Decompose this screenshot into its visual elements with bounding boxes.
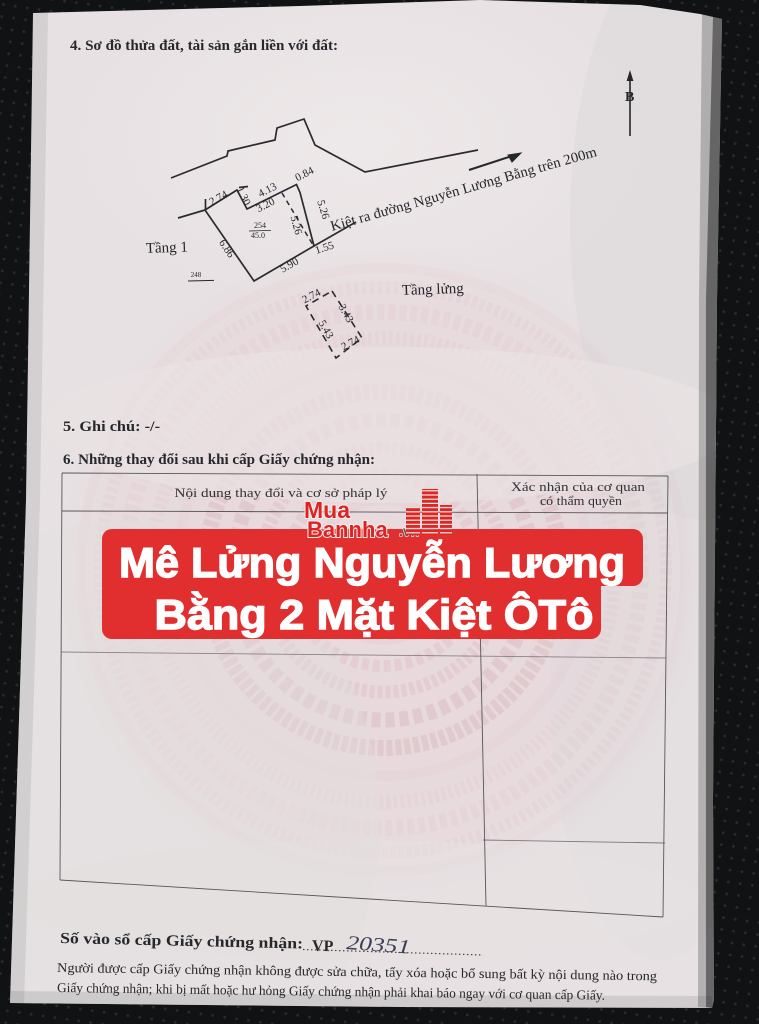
- svg-text:Tầng 1: Tầng 1: [146, 240, 189, 257]
- svg-text:B: B: [625, 90, 634, 105]
- svg-text:248: 248: [191, 271, 202, 279]
- svg-text:Nội dung thay đổi và cơ sở phá: Nội dung thay đổi và cơ sở pháp lý: [175, 485, 389, 500]
- svg-text:6. Những thay đổi sau khi cấp: 6. Những thay đổi sau khi cấp Giấy chứng…: [63, 452, 375, 468]
- svg-text:20351: 20351: [346, 932, 411, 958]
- svg-text:254: 254: [254, 221, 266, 230]
- svg-text:Xác nhận của cơ quan: Xác nhận của cơ quan: [511, 479, 646, 494]
- svg-text:Bằng 2 Mặt Kiệt ÔTô: Bằng 2 Mặt Kiệt ÔTô: [155, 590, 594, 638]
- svg-text:VP: VP: [312, 938, 334, 955]
- svg-text:4. Sơ đồ thửa đất, tài sản gắn: 4. Sơ đồ thửa đất, tài sản gắn liền với …: [70, 38, 338, 54]
- svg-text:5. Ghi chú: -/-: 5. Ghi chú: -/-: [63, 419, 160, 435]
- svg-text:45.0: 45.0: [251, 231, 265, 240]
- svg-text:Bannha: Bannha: [307, 517, 388, 542]
- svg-text:có thẩm quyền: có thẩm quyền: [540, 493, 623, 508]
- svg-text:Mê Lửng Nguyễn Lương: Mê Lửng Nguyễn Lương: [119, 538, 625, 586]
- svg-text:Tầng lửng: Tầng lửng: [402, 281, 465, 299]
